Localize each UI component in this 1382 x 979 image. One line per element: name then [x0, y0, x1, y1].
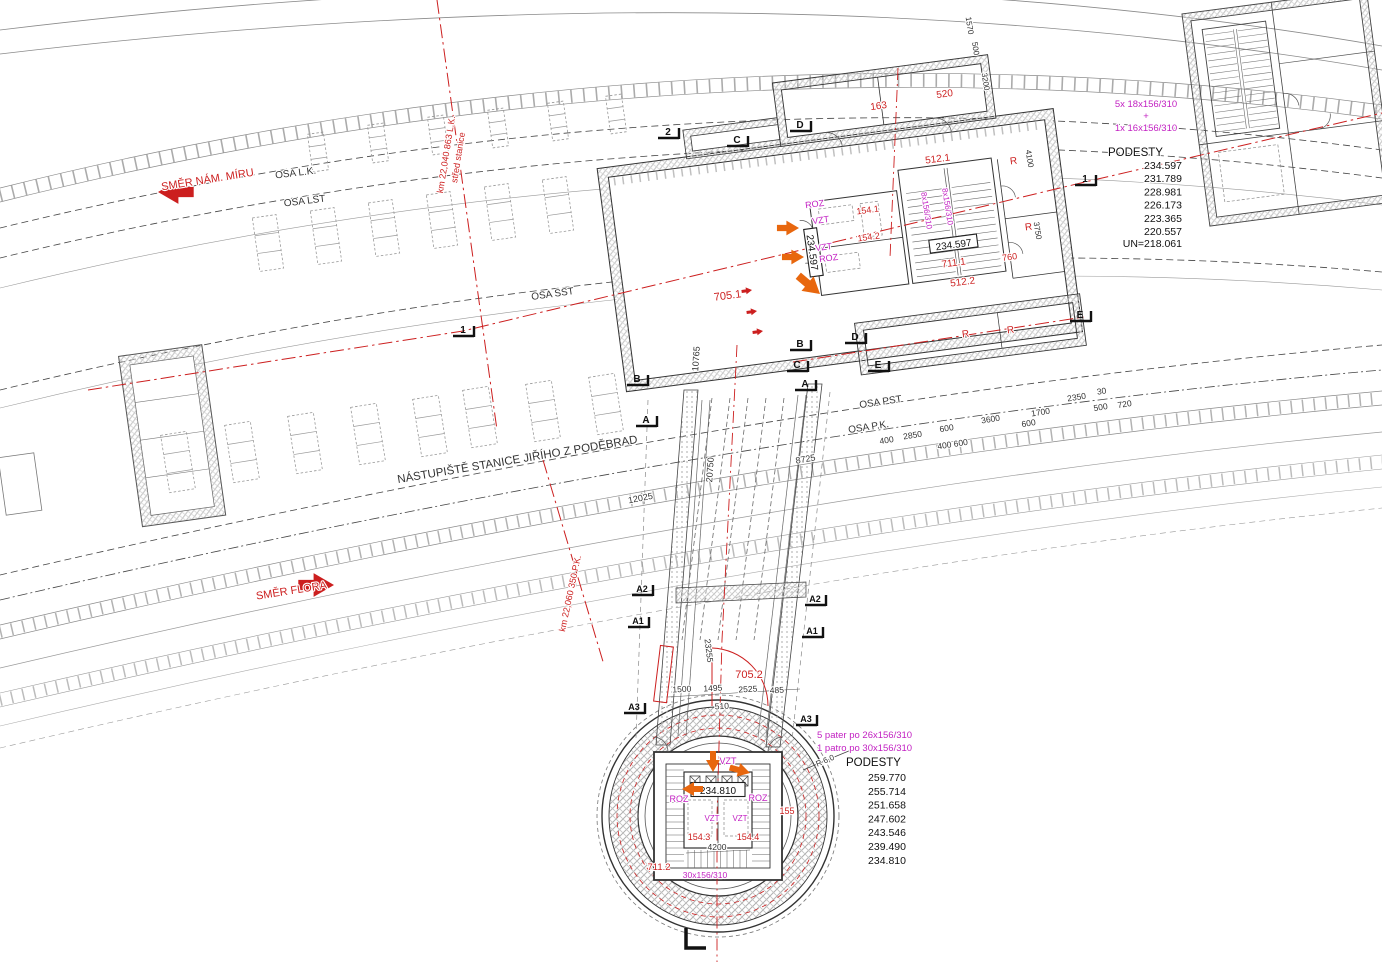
tunnel-wall-line: [0, 13, 1382, 70]
podesty-level: 220.557: [1144, 226, 1182, 238]
smer-flora: SMĚR FLORA: [255, 578, 328, 602]
platform-bench: [542, 177, 573, 234]
platform-bench: [288, 412, 323, 473]
section-marker-label: C: [793, 360, 800, 371]
section-marker-a1: A1: [628, 616, 649, 628]
section-marker-label: B: [796, 339, 803, 350]
stair-30x: 30x156/310: [683, 870, 728, 880]
room-r-2: R: [1024, 222, 1033, 234]
room-155: 155: [779, 806, 794, 816]
dim-400600: 400 600: [937, 437, 969, 452]
dim-30: 30: [1096, 385, 1107, 396]
tunnel-wall-line: [0, 0, 1382, 46]
room-163: 163: [870, 100, 888, 113]
room-711-2: 711.2: [647, 862, 670, 873]
section-marker-label: 1: [460, 325, 466, 336]
platform-bench: [426, 192, 457, 249]
podesty-level: 234.810: [868, 855, 906, 867]
section-marker-label: E: [1077, 310, 1084, 321]
section-marker-label: A1: [632, 616, 644, 626]
dim-720: 720: [1117, 398, 1133, 410]
platform-bench: [310, 208, 341, 265]
level-box-234810-value: 234.810: [700, 786, 737, 797]
podesty-level: 226.173: [1144, 200, 1182, 212]
section-marker-d: D: [790, 120, 811, 132]
section-marker-label: 2: [665, 127, 671, 138]
platform-bench: [225, 421, 260, 482]
podesty-level: 247.602: [868, 813, 906, 825]
room-r-3: R: [961, 329, 970, 341]
escalator-line: [700, 398, 730, 640]
podesty-level: 234.597: [1144, 160, 1182, 172]
room-705-2: 705.2: [735, 669, 763, 681]
section-marker-a2: A2: [632, 584, 653, 596]
platform-structure-small: [0, 453, 42, 515]
dim-485: 485: [769, 685, 784, 696]
dim-1500: 1500: [672, 684, 692, 695]
room-154-3: 154.3: [688, 832, 711, 842]
section-marker-label: A2: [809, 594, 821, 604]
osa-sst: OSA SST: [531, 286, 575, 303]
section-marker-a3: A3: [796, 714, 817, 726]
section-marker-c: C: [727, 135, 748, 147]
dim-500t: 500: [970, 41, 981, 56]
annex-building: [1182, 0, 1382, 226]
section-marker-a3: A3: [624, 702, 645, 714]
osa-lk: OSA L.K.: [275, 166, 317, 182]
section-marker-label: E: [875, 360, 882, 371]
shaft-vzt-a: VZT: [704, 814, 719, 823]
dim-1495: 1495: [703, 683, 723, 694]
osa-pst: OSA PST: [859, 394, 903, 411]
section-marker-label: A2: [636, 584, 648, 594]
section-marker-a: A: [636, 415, 657, 427]
platform-bench: [413, 395, 448, 456]
dim-600a: 600: [939, 422, 955, 434]
podesty-base-level: UN=218.061: [1123, 238, 1182, 250]
podesty-level: 259.770: [868, 772, 906, 784]
escalator-line: [736, 398, 766, 640]
station-plan-drawing: 234.597234.597234.810 2CD1BABDCEA1EA2A2A…: [0, 0, 1382, 979]
podesty-title: PODESTY: [1108, 147, 1163, 159]
section-marker-label: 1: [1082, 174, 1088, 185]
section-marker-label: A: [642, 415, 649, 426]
room-154-4: 154.4: [737, 832, 760, 842]
dim-2850: 2850: [902, 429, 923, 442]
annex-outer-wall: [1182, 0, 1382, 226]
section-marker-label: D: [796, 120, 803, 131]
stair-formula-1: 5 pater po 26x156/310: [817, 730, 912, 741]
room-r-1: R: [1009, 156, 1018, 168]
room-520: 520: [936, 88, 954, 101]
stair-formula-1: 5x 18x156/310: [1115, 99, 1177, 110]
dim-3600: 3600: [980, 413, 1001, 426]
room-r-4: R: [1006, 325, 1015, 337]
dim-3200: 3200: [980, 72, 992, 92]
section-marker-label: C: [733, 135, 740, 146]
podesty-level: 228.981: [1144, 186, 1182, 198]
dim-500: 500: [1093, 401, 1109, 413]
podesty-level: 255.714: [868, 786, 906, 798]
escalator-line: [718, 398, 748, 640]
section-marker-label: A1: [806, 626, 818, 636]
stair-formula-2: 1 patro po 30x156/310: [817, 743, 912, 754]
stair-formula-plus: +: [1143, 111, 1149, 122]
podesty-title: PODESTY: [846, 757, 901, 769]
room-760: 760: [1002, 251, 1018, 263]
section-marker-a1: A1: [802, 626, 823, 638]
platform-bench: [252, 215, 283, 272]
platform-bench: [351, 403, 386, 464]
osa-pk: OSA P.K.: [848, 419, 890, 436]
dim-1700: 1700: [1030, 406, 1051, 419]
dim-510: 510: [714, 701, 729, 712]
platform-bench: [547, 101, 568, 141]
nastupiste: NÁSTUPIŠTĚ STANICE JIŘÍHO Z PODĚBRAD: [396, 433, 638, 486]
km-pk: km 22,060 350 P.K.: [557, 554, 583, 632]
escalator-lines: [682, 398, 784, 640]
stair-formula-2: 1x 16x156/310: [1115, 123, 1177, 134]
dim-12025: 12025: [627, 491, 653, 506]
shaft-roz-right: ROZ: [749, 793, 769, 803]
escalator-line: [754, 398, 784, 640]
dim-400: 400: [879, 434, 895, 446]
dim-10765: 10765: [690, 346, 702, 372]
platform-bench: [589, 373, 624, 434]
podesty-level: 231.789: [1144, 173, 1182, 185]
platform-bench: [367, 123, 388, 163]
platform-bench: [484, 184, 515, 241]
podesty-level: 239.490: [868, 841, 906, 853]
dim-2525: 2525: [738, 684, 758, 695]
shaft-roz-left: ROZ: [670, 794, 690, 804]
section-marker-label: D: [851, 332, 858, 343]
dim-600b: 600: [1021, 417, 1037, 429]
section-marker-label: A3: [800, 714, 812, 724]
podesty-level: 223.365: [1144, 213, 1182, 225]
platform-bench: [487, 108, 508, 148]
section-marker-a2: A2: [805, 594, 826, 606]
drawing-canvas: 234.597234.597234.810 2CD1BABDCEA1EA2A2A…: [0, 0, 1382, 979]
annex-stairwell: [1202, 21, 1280, 136]
podesty-level: 243.546: [868, 827, 906, 839]
platform-access-structure: [119, 345, 226, 527]
section-marker-label: A: [801, 379, 808, 390]
dim-20750: 20750: [704, 457, 716, 483]
smer-nam-miru: SMĚR NÁM. MÍRU: [160, 166, 254, 193]
station-building: [589, 47, 1086, 406]
door-arc: [1316, 113, 1332, 129]
section-marker-1: 1: [453, 325, 474, 337]
podesty-level: 251.658: [868, 800, 906, 812]
section-marker-label: A3: [628, 702, 640, 712]
osa-lst: OSA LST: [283, 194, 326, 210]
platform-bench: [368, 200, 399, 257]
dim-23255: 23255: [703, 638, 716, 663]
section-marker-label: B: [633, 374, 640, 385]
dim-1570: 1570: [964, 16, 976, 36]
shaft-vzt-b: VZT: [732, 814, 747, 823]
platform-bench: [526, 380, 561, 441]
dim-4200: 4200: [708, 842, 727, 852]
shaft-vzt-top: VZT: [720, 756, 738, 766]
section-marker-2: 2: [658, 127, 679, 139]
